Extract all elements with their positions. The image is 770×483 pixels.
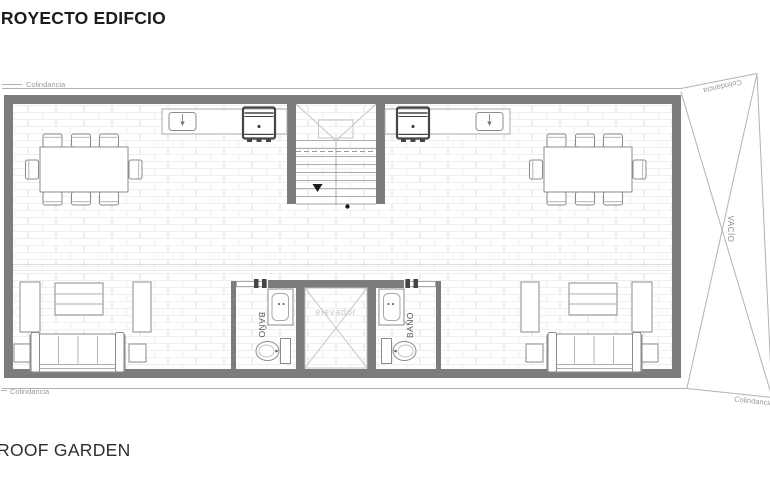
elevator-label: elevador <box>316 307 357 317</box>
void-label: VACÍO <box>726 216 735 243</box>
bathroom-left-label: BAÑO <box>257 312 267 338</box>
floor-plan-sheet: PROYECTO EDIFCIO ROOF GARDEN <box>0 0 770 483</box>
floor-plan-drawing: elevador BAÑO BAÑO Colindancia Colindanc… <box>0 0 770 483</box>
void-area-cross <box>681 74 770 397</box>
colindancia-label-bottom-left: Colindancia <box>10 387 50 396</box>
stair-reference-dot <box>345 204 349 208</box>
bathroom-right-label: BAÑO <box>405 312 415 338</box>
colindancia-label-top-left: Colindancia <box>26 80 66 89</box>
